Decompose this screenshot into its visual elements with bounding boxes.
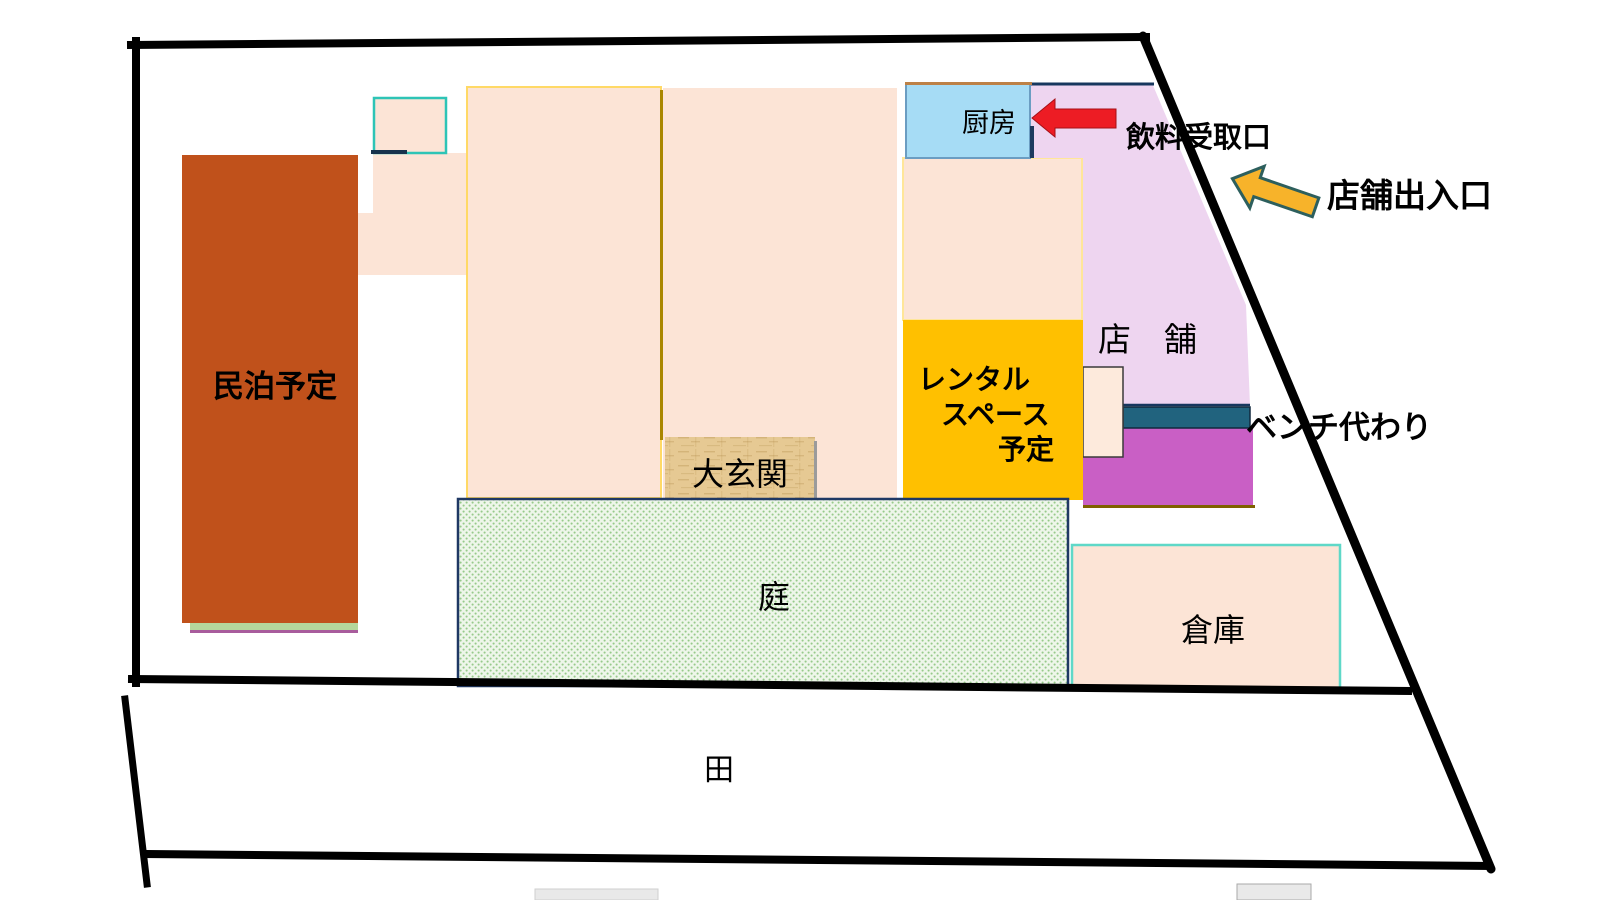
wing-divider-line	[660, 90, 663, 440]
small-annex	[374, 98, 446, 153]
rental-label-line2: スペース	[941, 399, 1050, 430]
kitchen-top-border	[905, 82, 1032, 85]
drink-pickup-label: 飲料受取口	[1126, 120, 1271, 154]
store-entrance-label: 店舗出入口	[1327, 177, 1492, 214]
bottom-shape-right	[1237, 884, 1311, 900]
minpaku-base-line	[190, 630, 358, 633]
field-label: 田	[704, 754, 734, 787]
store-entrance-arrow	[1225, 158, 1323, 228]
bench-label: ベンチ代わり	[1246, 410, 1432, 445]
kitchen-label: 厨房	[962, 108, 1016, 138]
store-front-bottom-border	[1083, 505, 1255, 508]
bottom-shape-left	[535, 889, 658, 900]
kitchen-right-tick	[1030, 126, 1034, 158]
minpaku-base-strip	[190, 623, 358, 630]
boundary-top	[131, 37, 1146, 45]
main-building-west-wing	[467, 87, 661, 498]
entrance-hall-shadow	[814, 441, 817, 500]
store-label: 店 舗	[1098, 321, 1197, 358]
entrance-hall-label: 大玄関	[692, 456, 788, 492]
warehouse-label: 倉庫	[1181, 612, 1245, 648]
minpaku-label: 民泊予定	[213, 369, 337, 404]
annex-wing	[358, 153, 467, 275]
small-annex-underline	[371, 150, 407, 154]
site-plan-page: 民泊予定 厨房 飲料受取口 店舗出入口 店 舗 レンタル スペース 予定 大玄関…	[0, 0, 1600, 900]
rental-label-line1: レンタル	[918, 364, 1030, 395]
bench-bar	[1123, 407, 1250, 428]
boundary-bottom-outer	[147, 854, 1489, 866]
garden-label: 庭	[758, 579, 790, 615]
main-building-east-wing	[903, 158, 1082, 320]
main-building-center-wing	[663, 88, 897, 498]
store-side-room	[1083, 367, 1123, 457]
rental-label-line3: 予定	[998, 433, 1054, 465]
site-plan-canvas: 民泊予定 厨房 飲料受取口 店舗出入口 店 舗 レンタル スペース 予定 大玄関…	[0, 0, 1600, 900]
store-entrance-arrow-group	[1225, 158, 1323, 228]
